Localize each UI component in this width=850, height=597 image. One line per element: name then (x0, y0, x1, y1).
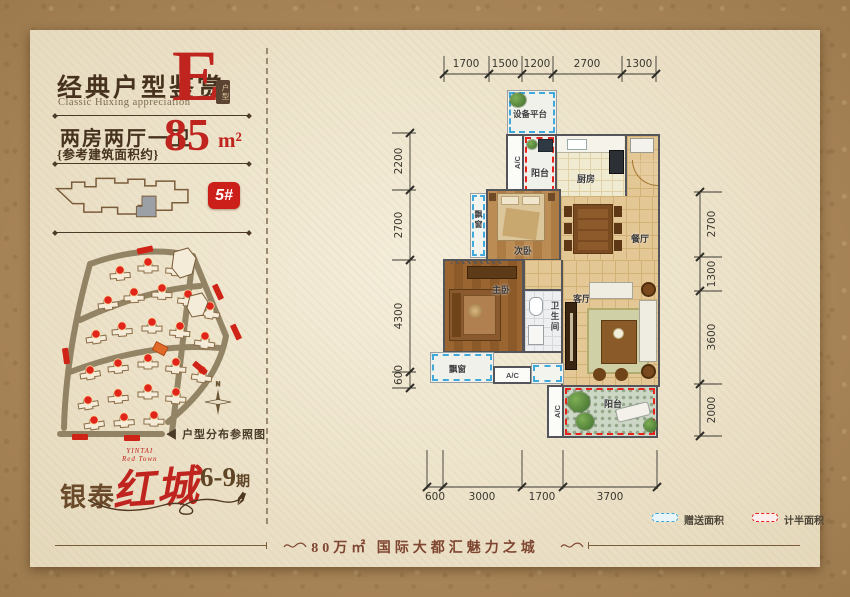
sofa-bench-icon (589, 282, 633, 299)
legend-gift-swatch (652, 513, 678, 522)
building-footprint-diagram (52, 170, 202, 226)
dim-label: 2700 (706, 211, 718, 238)
wardrobe-icon (467, 266, 517, 279)
entry-door-arc (632, 160, 658, 186)
plant-icon (644, 419, 657, 432)
room-kitchen: 厨房 (555, 134, 627, 198)
unit-seal: 户型 (216, 80, 230, 104)
svg-text:N: N (216, 382, 220, 388)
stove-icon (609, 150, 624, 174)
room-label: 飘窗 (473, 210, 484, 230)
water-heater-icon (538, 139, 553, 152)
gift-area-outline (533, 365, 562, 382)
unit-area-unit: m² (218, 128, 242, 153)
room-living: 客厅 (561, 260, 660, 387)
room-balcony-bottom: 阳台 (562, 385, 658, 438)
dim-label: 1700 (529, 491, 556, 503)
legend-half-label: 计半面积 (784, 512, 824, 527)
dining-table-icon (573, 204, 613, 254)
dim-label: 2700 (574, 58, 601, 70)
sink-icon (567, 139, 587, 150)
dim-label: 1200 (524, 58, 551, 70)
stool-icon (593, 368, 606, 381)
bay-window-left: 飘窗 (470, 193, 487, 258)
dim-label: 3000 (469, 491, 496, 503)
side-table-icon (641, 282, 656, 297)
room-label: 卫生间 (549, 301, 561, 333)
room-bath: 卫生间 (523, 289, 564, 353)
poster-canvas: 经典户型鉴赏 Classic Huxing appreciation E 户型 … (0, 0, 850, 597)
room-label: 阳台 (604, 397, 622, 410)
unit-spec-note: {参考建筑面积约} (57, 144, 159, 163)
divider-rule (55, 163, 249, 164)
legend-gift-label: 赠送面积 (684, 512, 724, 527)
plant-icon (576, 413, 594, 430)
ac-label: A/C (553, 405, 562, 418)
nightstand-icon (548, 193, 555, 201)
room-label: 餐厅 (631, 232, 649, 245)
dim-label: 3600 (706, 324, 718, 351)
site-plan-map: N (50, 240, 252, 446)
dim-label: 600 (393, 365, 405, 385)
room-label: 飘窗 (449, 363, 466, 375)
chair-icon (564, 240, 572, 251)
dim-label: 1300 (706, 261, 718, 288)
room-dining: 餐厅 (559, 196, 660, 262)
dim-label: 1300 (626, 58, 653, 70)
entry-area (625, 134, 660, 198)
side-table-icon (641, 364, 656, 379)
unit-area-value: 85 (164, 112, 210, 158)
room-label: 厨房 (577, 172, 595, 185)
hallway (523, 260, 563, 291)
page-subtitle: Classic Huxing appreciation (58, 97, 190, 108)
vanity-icon (528, 325, 544, 345)
compass-icon: N (205, 382, 231, 415)
dim-label: 600 (425, 491, 445, 503)
bed-icon (497, 193, 545, 241)
vertical-dashed-divider (266, 48, 268, 524)
fridge-icon (630, 138, 654, 153)
room-balcony-top: 阳台 (522, 134, 557, 195)
divider-rule (55, 115, 249, 116)
bay-window-bottom: 飘窗 (430, 352, 494, 383)
sofa-icon (639, 300, 657, 362)
chair-icon (564, 206, 572, 217)
logo-phase: 6-9期 (200, 462, 250, 493)
site-plan-caption: ◀ 户型分布参照图 (166, 426, 266, 442)
room-bedroom1: 主卧 (443, 259, 524, 353)
unit-letter: E (172, 40, 220, 112)
building-number-badge: 5# (208, 182, 240, 209)
stool-icon (615, 368, 628, 381)
plant-icon (527, 140, 537, 149)
plant-icon (510, 93, 526, 107)
tv-cabinet-icon (565, 302, 577, 370)
bed-icon (449, 289, 501, 341)
dim-label: 2200 (393, 148, 405, 175)
room-label: 主卧 (492, 283, 510, 296)
toilet-icon (529, 297, 543, 316)
chair-icon (614, 223, 622, 234)
dim-label: 1500 (492, 58, 519, 70)
dim-label: 1700 (453, 58, 480, 70)
logo-flourish (86, 492, 246, 516)
ac-label: A/C (506, 371, 519, 380)
nightstand-icon (489, 193, 496, 201)
room-bedroom2: 次卧 (486, 189, 561, 261)
chair-icon (614, 206, 622, 217)
chair-icon (614, 240, 622, 251)
room-label: 设备平台 (513, 108, 547, 120)
ac-label: A/C (513, 156, 522, 169)
dim-label: 4300 (393, 303, 405, 330)
room-equipment-platform: 设备平台 (507, 90, 557, 135)
dim-label: 2000 (706, 397, 718, 424)
dim-label: 2700 (393, 212, 405, 239)
caption-arrow-icon: ◀ (166, 429, 178, 441)
gift-area-box (531, 363, 564, 384)
room-label: 次卧 (514, 244, 532, 257)
legend-half-swatch (752, 513, 778, 522)
ac-shaft-bottom: A/C (493, 366, 532, 384)
divider-rule (55, 232, 249, 233)
window-hatch (451, 260, 503, 264)
plant-icon (568, 392, 590, 412)
dim-label: 3700 (597, 491, 624, 503)
chair-icon (564, 223, 572, 234)
coffee-table-icon (601, 320, 637, 364)
room-label: 阳台 (531, 166, 549, 179)
footer-tagline: 80万㎡ 国际大都汇魅力之城 (0, 537, 850, 557)
